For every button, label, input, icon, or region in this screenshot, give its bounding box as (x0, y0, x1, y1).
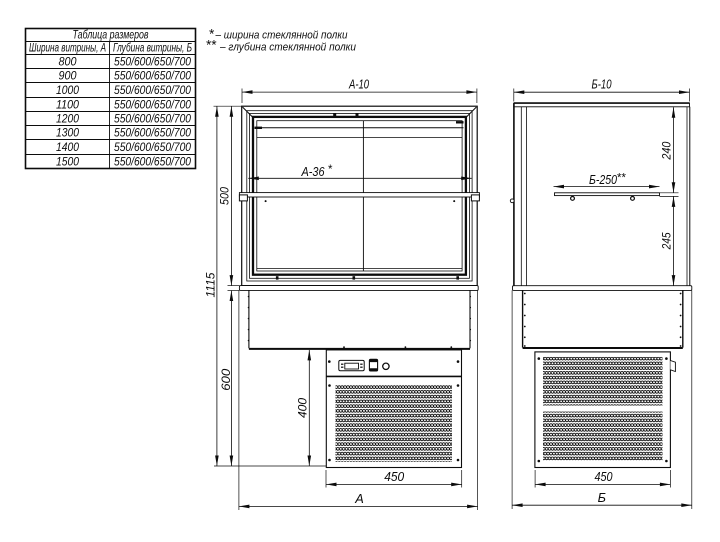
svg-text:А-10: А-10 (348, 76, 369, 91)
svg-text:550/600/650/700: 550/600/650/700 (114, 69, 191, 83)
svg-text:1400: 1400 (56, 140, 79, 154)
svg-text:Таблица размеров: Таблица размеров (73, 27, 149, 41)
svg-text:550/600/650/700: 550/600/650/700 (114, 55, 191, 69)
svg-text:550/600/650/700: 550/600/650/700 (114, 155, 191, 169)
svg-text:1500: 1500 (56, 155, 79, 169)
svg-text:Б-10: Б-10 (592, 76, 613, 91)
svg-text:400: 400 (296, 398, 310, 418)
svg-text:245: 245 (659, 232, 673, 250)
svg-text:А: А (354, 491, 364, 506)
svg-text:450: 450 (384, 469, 405, 484)
svg-text:450: 450 (595, 469, 614, 484)
svg-text:550/600/650/700: 550/600/650/700 (114, 140, 191, 154)
svg-text:**: ** (206, 38, 217, 53)
svg-text:1000: 1000 (56, 83, 79, 97)
svg-text:550/600/650/700: 550/600/650/700 (114, 126, 191, 140)
svg-text:– ширина стеклянной полки: – ширина стеклянной полки (215, 30, 348, 42)
svg-text:550/600/650/700: 550/600/650/700 (114, 83, 191, 97)
svg-text:550/600/650/700: 550/600/650/700 (114, 112, 191, 126)
svg-text:Ширина витрины, А: Ширина витрины, А (29, 41, 106, 55)
svg-text:550/600/650/700: 550/600/650/700 (114, 98, 191, 112)
svg-text:1200: 1200 (56, 112, 79, 126)
svg-text:1100: 1100 (56, 98, 79, 112)
svg-text:1300: 1300 (56, 126, 79, 140)
svg-text:А-36: А-36 (301, 164, 326, 179)
svg-text:800: 800 (59, 55, 77, 69)
svg-text:*: * (328, 164, 333, 176)
svg-text:Глубина витрины, Б: Глубина витрины, Б (113, 41, 192, 55)
svg-text:Б: Б (598, 490, 606, 505)
svg-text:900: 900 (59, 69, 77, 83)
svg-text:240: 240 (659, 141, 673, 160)
svg-text:1115: 1115 (204, 272, 218, 297)
svg-text:500: 500 (218, 187, 232, 205)
svg-text:Б-250: Б-250 (589, 172, 618, 187)
svg-text:– глубина стеклянной полки: – глубина стеклянной полки (219, 42, 357, 54)
svg-text:600: 600 (219, 369, 233, 391)
svg-text:**: ** (617, 173, 626, 185)
